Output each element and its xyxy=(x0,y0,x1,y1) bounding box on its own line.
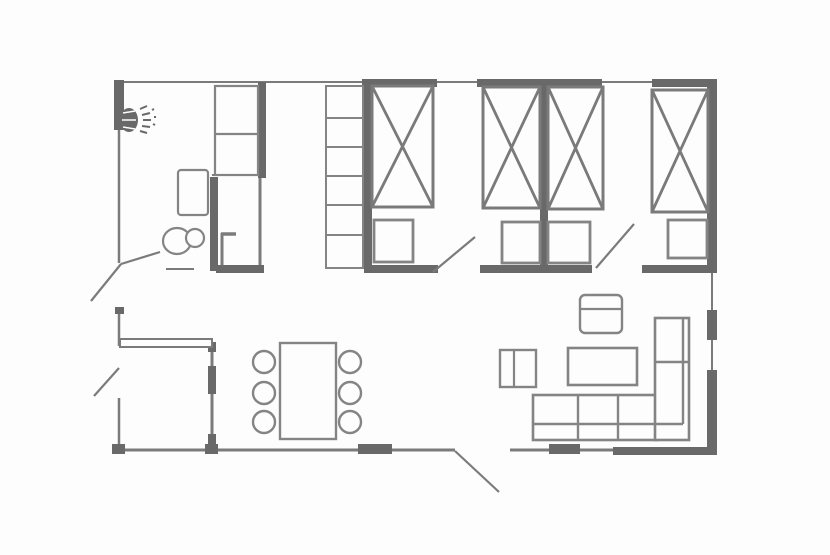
bedroom2-bottom-wall xyxy=(480,265,592,273)
shower-spray-2 xyxy=(142,113,150,115)
bedroom1-door-leaf xyxy=(433,237,475,272)
side-door-leaf xyxy=(94,368,119,396)
dining-chair-3 xyxy=(253,411,275,433)
nightstand-4 xyxy=(668,220,707,258)
bath-bottom-wall xyxy=(216,265,264,273)
dining-chair-1 xyxy=(253,351,275,373)
entry-partition-thick xyxy=(208,366,216,394)
entry-partition-nub-bottom xyxy=(208,434,216,450)
shower-spray-1 xyxy=(140,106,147,109)
dining-table xyxy=(280,343,336,439)
bedroom1-bottom-wall xyxy=(364,265,438,273)
toilet-tank xyxy=(186,229,204,247)
side-table xyxy=(500,350,536,387)
right-wall-pier xyxy=(707,310,717,340)
entry-door-leaf xyxy=(455,451,499,492)
shower-spray-5 xyxy=(140,131,147,133)
bath-door-leaf-a xyxy=(121,252,160,264)
dining-chair-6 xyxy=(339,411,361,433)
shower-spray-8 xyxy=(153,124,155,125)
right-wall-lower xyxy=(707,370,717,455)
bottom-wall-right xyxy=(613,447,717,455)
bath-closet-wall xyxy=(258,82,266,178)
armchair xyxy=(580,295,622,333)
entry-hall-wall xyxy=(120,339,212,347)
bath-door-leaf-b xyxy=(91,264,121,301)
shower-cabin-left-wall xyxy=(210,177,218,271)
bedroom3-bottom-wall xyxy=(642,265,717,273)
dining-chair-2 xyxy=(253,382,275,404)
floor-plan xyxy=(0,0,830,555)
shower-spray-6 xyxy=(152,109,154,110)
bath-closet xyxy=(215,86,258,175)
nightstand-1 xyxy=(374,220,413,262)
sofa-main xyxy=(533,395,657,440)
left-wall-entry-cap xyxy=(115,307,124,314)
floor-plan-svg xyxy=(0,0,830,555)
nightstand-2 xyxy=(502,222,540,263)
bottom-window-dining xyxy=(358,444,392,454)
nightstand-3 xyxy=(548,222,590,263)
bath-sink xyxy=(178,170,208,215)
coffee-table xyxy=(568,348,637,385)
bedroom2-door-leaf xyxy=(596,224,634,268)
dining-chair-4 xyxy=(339,351,361,373)
bottom-window-living xyxy=(549,444,580,454)
dining-chair-5 xyxy=(339,382,361,404)
bottom-wall-nub-left xyxy=(112,444,125,454)
shower-spray-4 xyxy=(142,126,150,127)
